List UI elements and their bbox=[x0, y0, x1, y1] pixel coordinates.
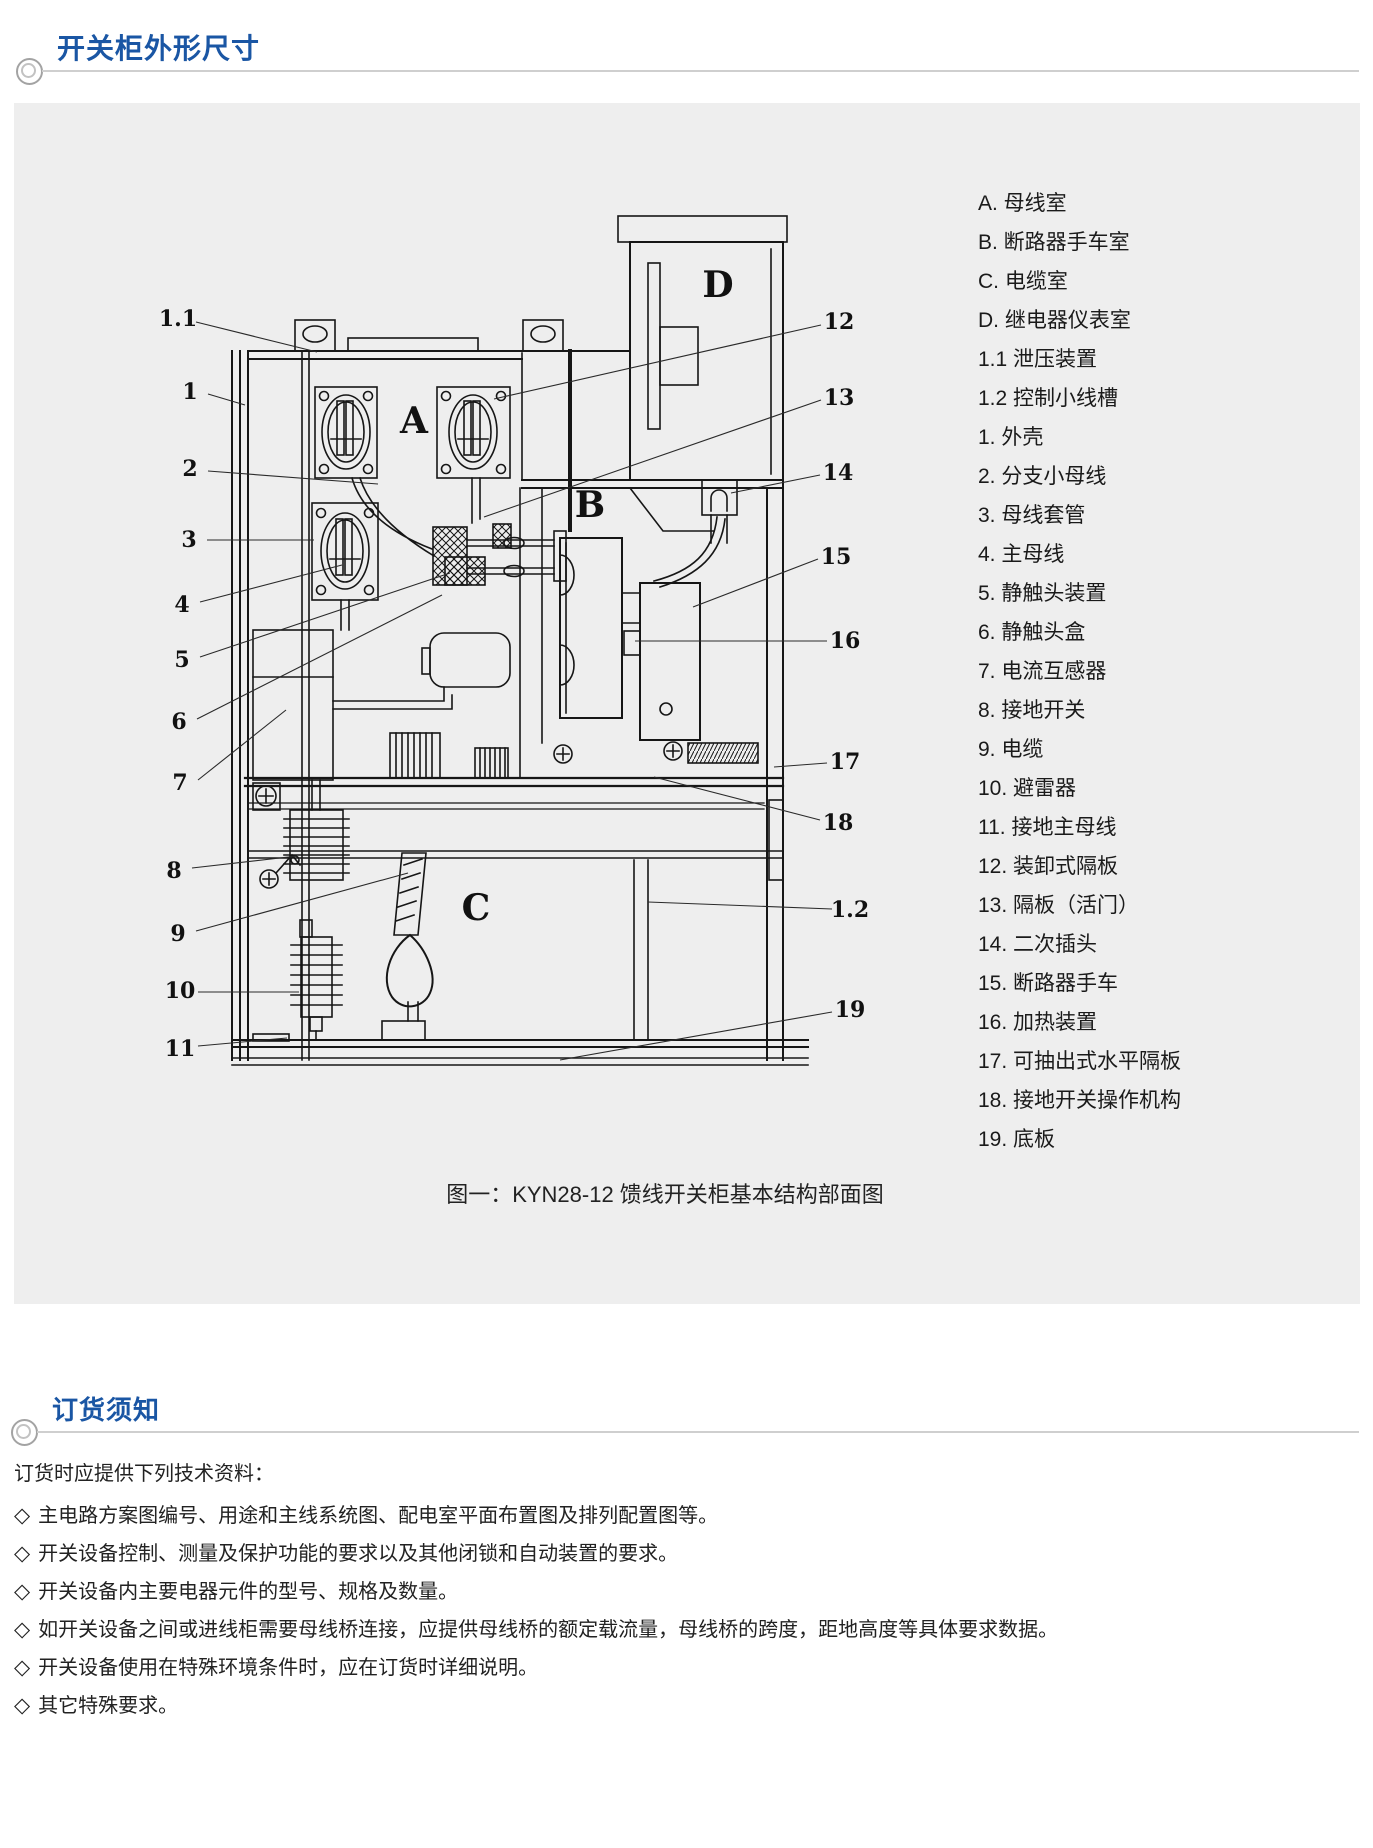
callout-label: 1.2 bbox=[831, 897, 869, 923]
callout-label: 11 bbox=[165, 1036, 196, 1062]
ordering-intro: 订货时应提供下列技术资料： bbox=[14, 1462, 274, 1486]
legend-item: 1. 外壳 bbox=[978, 418, 1181, 457]
ordering-item-text: 其它特殊要求。 bbox=[38, 1695, 178, 1717]
legend-item: 8. 接地开关 bbox=[978, 691, 1181, 730]
ordering-item: ◇其它特殊要求。 bbox=[14, 1687, 1058, 1725]
callout-label: 12 bbox=[824, 309, 855, 335]
section-marker-icon bbox=[11, 1419, 38, 1446]
legend-item: 9. 电缆 bbox=[978, 730, 1181, 769]
callout-label: 10 bbox=[165, 978, 196, 1004]
figure-caption: 图一：KYN28-12 馈线开关柜基本结构部面图 bbox=[14, 1181, 1316, 1209]
diamond-bullet-icon: ◇ bbox=[14, 1497, 30, 1535]
diamond-bullet-icon: ◇ bbox=[14, 1535, 30, 1573]
compartment-letter-d: D bbox=[702, 264, 733, 306]
callout-label: 19 bbox=[835, 997, 866, 1023]
callout-label: 4 bbox=[174, 592, 189, 618]
ordering-item-text: 开关设备内主要电器元件的型号、规格及数量。 bbox=[38, 1581, 458, 1603]
legend-item: 15. 断路器手车 bbox=[978, 964, 1181, 1003]
diamond-bullet-icon: ◇ bbox=[14, 1687, 30, 1725]
callout-label: 3 bbox=[181, 527, 196, 553]
diamond-bullet-icon: ◇ bbox=[14, 1573, 30, 1611]
ordering-item: ◇开关设备控制、测量及保护功能的要求以及其他闭锁和自动装置的要求。 bbox=[14, 1535, 1058, 1573]
ordering-item: ◇开关设备使用在特殊环境条件时，应在订货时详细说明。 bbox=[14, 1649, 1058, 1687]
legend-item: 10. 避雷器 bbox=[978, 769, 1181, 808]
ordering-item: ◇如开关设备之间或进线柜需要母线桥连接，应提供母线桥的额定载流量，母线桥的跨度，… bbox=[14, 1611, 1058, 1649]
legend-item: 4. 主母线 bbox=[978, 535, 1181, 574]
ordering-item: ◇主电路方案图编号、用途和主线系统图、配电室平面布置图及排列配置图等。 bbox=[14, 1497, 1058, 1535]
legend-item: A. 母线室 bbox=[978, 184, 1181, 223]
callout-label: 18 bbox=[823, 810, 854, 836]
callout-label: 17 bbox=[830, 749, 861, 775]
callout-label: 16 bbox=[830, 628, 861, 654]
legend-item: 1.2 控制小线槽 bbox=[978, 379, 1181, 418]
legend-item: 6. 静触头盒 bbox=[978, 613, 1181, 652]
compartment-letter-a: A bbox=[400, 400, 428, 442]
callout-label: 5 bbox=[174, 647, 189, 673]
compartment-letter-c: C bbox=[462, 887, 491, 929]
legend-item: 17. 可抽出式水平隔板 bbox=[978, 1042, 1181, 1081]
ordering-item-text: 开关设备使用在特殊环境条件时，应在订货时详细说明。 bbox=[38, 1657, 538, 1679]
callout-leader-lines bbox=[192, 322, 832, 1060]
callout-label: 2 bbox=[182, 456, 197, 482]
section-title-ordering: 订货须知 bbox=[52, 1390, 160, 1427]
parts-legend: A. 母线室 B. 断路器手车室 C. 电缆室 D. 继电器仪表室 1.1 泄压… bbox=[978, 184, 1181, 1159]
legend-item: 3. 母线套管 bbox=[978, 496, 1181, 535]
section-marker-icon bbox=[16, 58, 43, 85]
legend-item: 2. 分支小母线 bbox=[978, 457, 1181, 496]
callout-label: 15 bbox=[821, 544, 852, 570]
callout-label: 6 bbox=[171, 709, 186, 735]
ordering-list: ◇主电路方案图编号、用途和主线系统图、配电室平面布置图及排列配置图等。 ◇开关设… bbox=[14, 1497, 1058, 1725]
legend-item: 14. 二次插头 bbox=[978, 925, 1181, 964]
legend-item: 1.1 泄压装置 bbox=[978, 340, 1181, 379]
legend-item: B. 断路器手车室 bbox=[978, 223, 1181, 262]
legend-item: 5. 静触头装置 bbox=[978, 574, 1181, 613]
diamond-bullet-icon: ◇ bbox=[14, 1611, 30, 1649]
ordering-item-text: 开关设备控制、测量及保护功能的要求以及其他闭锁和自动装置的要求。 bbox=[38, 1543, 678, 1565]
catalog-page: 开关柜外形尺寸 bbox=[0, 0, 1373, 1848]
legend-item: 19. 底板 bbox=[978, 1120, 1181, 1159]
section-divider bbox=[37, 1431, 1359, 1433]
ordering-item: ◇开关设备内主要电器元件的型号、规格及数量。 bbox=[14, 1573, 1058, 1611]
ordering-item-text: 如开关设备之间或进线柜需要母线桥连接，应提供母线桥的额定载流量，母线桥的跨度，距… bbox=[38, 1619, 1058, 1641]
legend-item: 18. 接地开关操作机构 bbox=[978, 1081, 1181, 1120]
callout-label: 14 bbox=[823, 460, 854, 486]
compartment-letter-b: B bbox=[575, 484, 605, 526]
diagram-panel: A B C D 1.1 1 2 3 4 5 6 7 8 9 10 11 12 1… bbox=[14, 103, 1360, 1304]
callout-label: 8 bbox=[166, 858, 181, 884]
callout-label: 9 bbox=[170, 921, 185, 947]
legend-item: 7. 电流互感器 bbox=[978, 652, 1181, 691]
callout-label: 1.1 bbox=[159, 306, 197, 332]
legend-item: 16. 加热装置 bbox=[978, 1003, 1181, 1042]
callout-label: 13 bbox=[824, 385, 855, 411]
legend-item: 12. 装卸式隔板 bbox=[978, 847, 1181, 886]
section-title-dimensions: 开关柜外形尺寸 bbox=[57, 27, 260, 67]
diamond-bullet-icon: ◇ bbox=[14, 1649, 30, 1687]
legend-item: 13. 隔板（活门） bbox=[978, 886, 1181, 925]
legend-item: D. 继电器仪表室 bbox=[978, 301, 1181, 340]
legend-item: 11. 接地主母线 bbox=[978, 808, 1181, 847]
ordering-item-text: 主电路方案图编号、用途和主线系统图、配电室平面布置图及排列配置图等。 bbox=[38, 1505, 718, 1527]
legend-item: C. 电缆室 bbox=[978, 262, 1181, 301]
section-divider bbox=[42, 70, 1359, 72]
callout-label: 7 bbox=[172, 770, 187, 796]
callout-label: 1 bbox=[182, 379, 197, 405]
